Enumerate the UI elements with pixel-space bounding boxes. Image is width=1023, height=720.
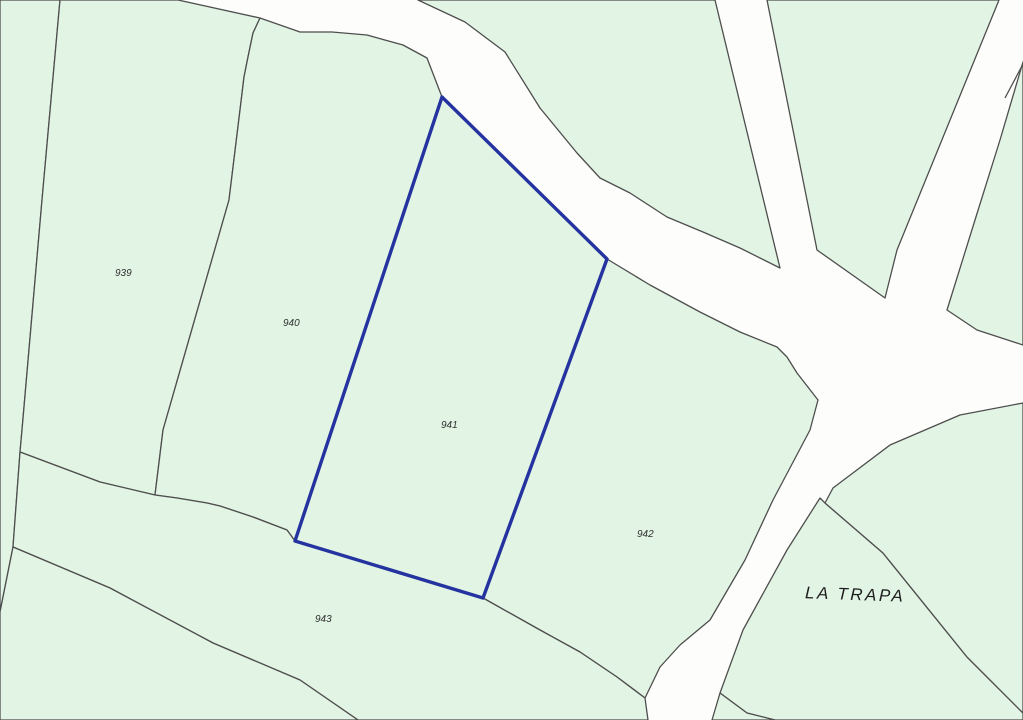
parcel-east-corner[interactable] [947, 62, 1023, 345]
cadastral-map[interactable]: 939940941942943LA TRAPA [0, 0, 1023, 720]
map-container: 939940941942943LA TRAPA [0, 0, 1023, 720]
